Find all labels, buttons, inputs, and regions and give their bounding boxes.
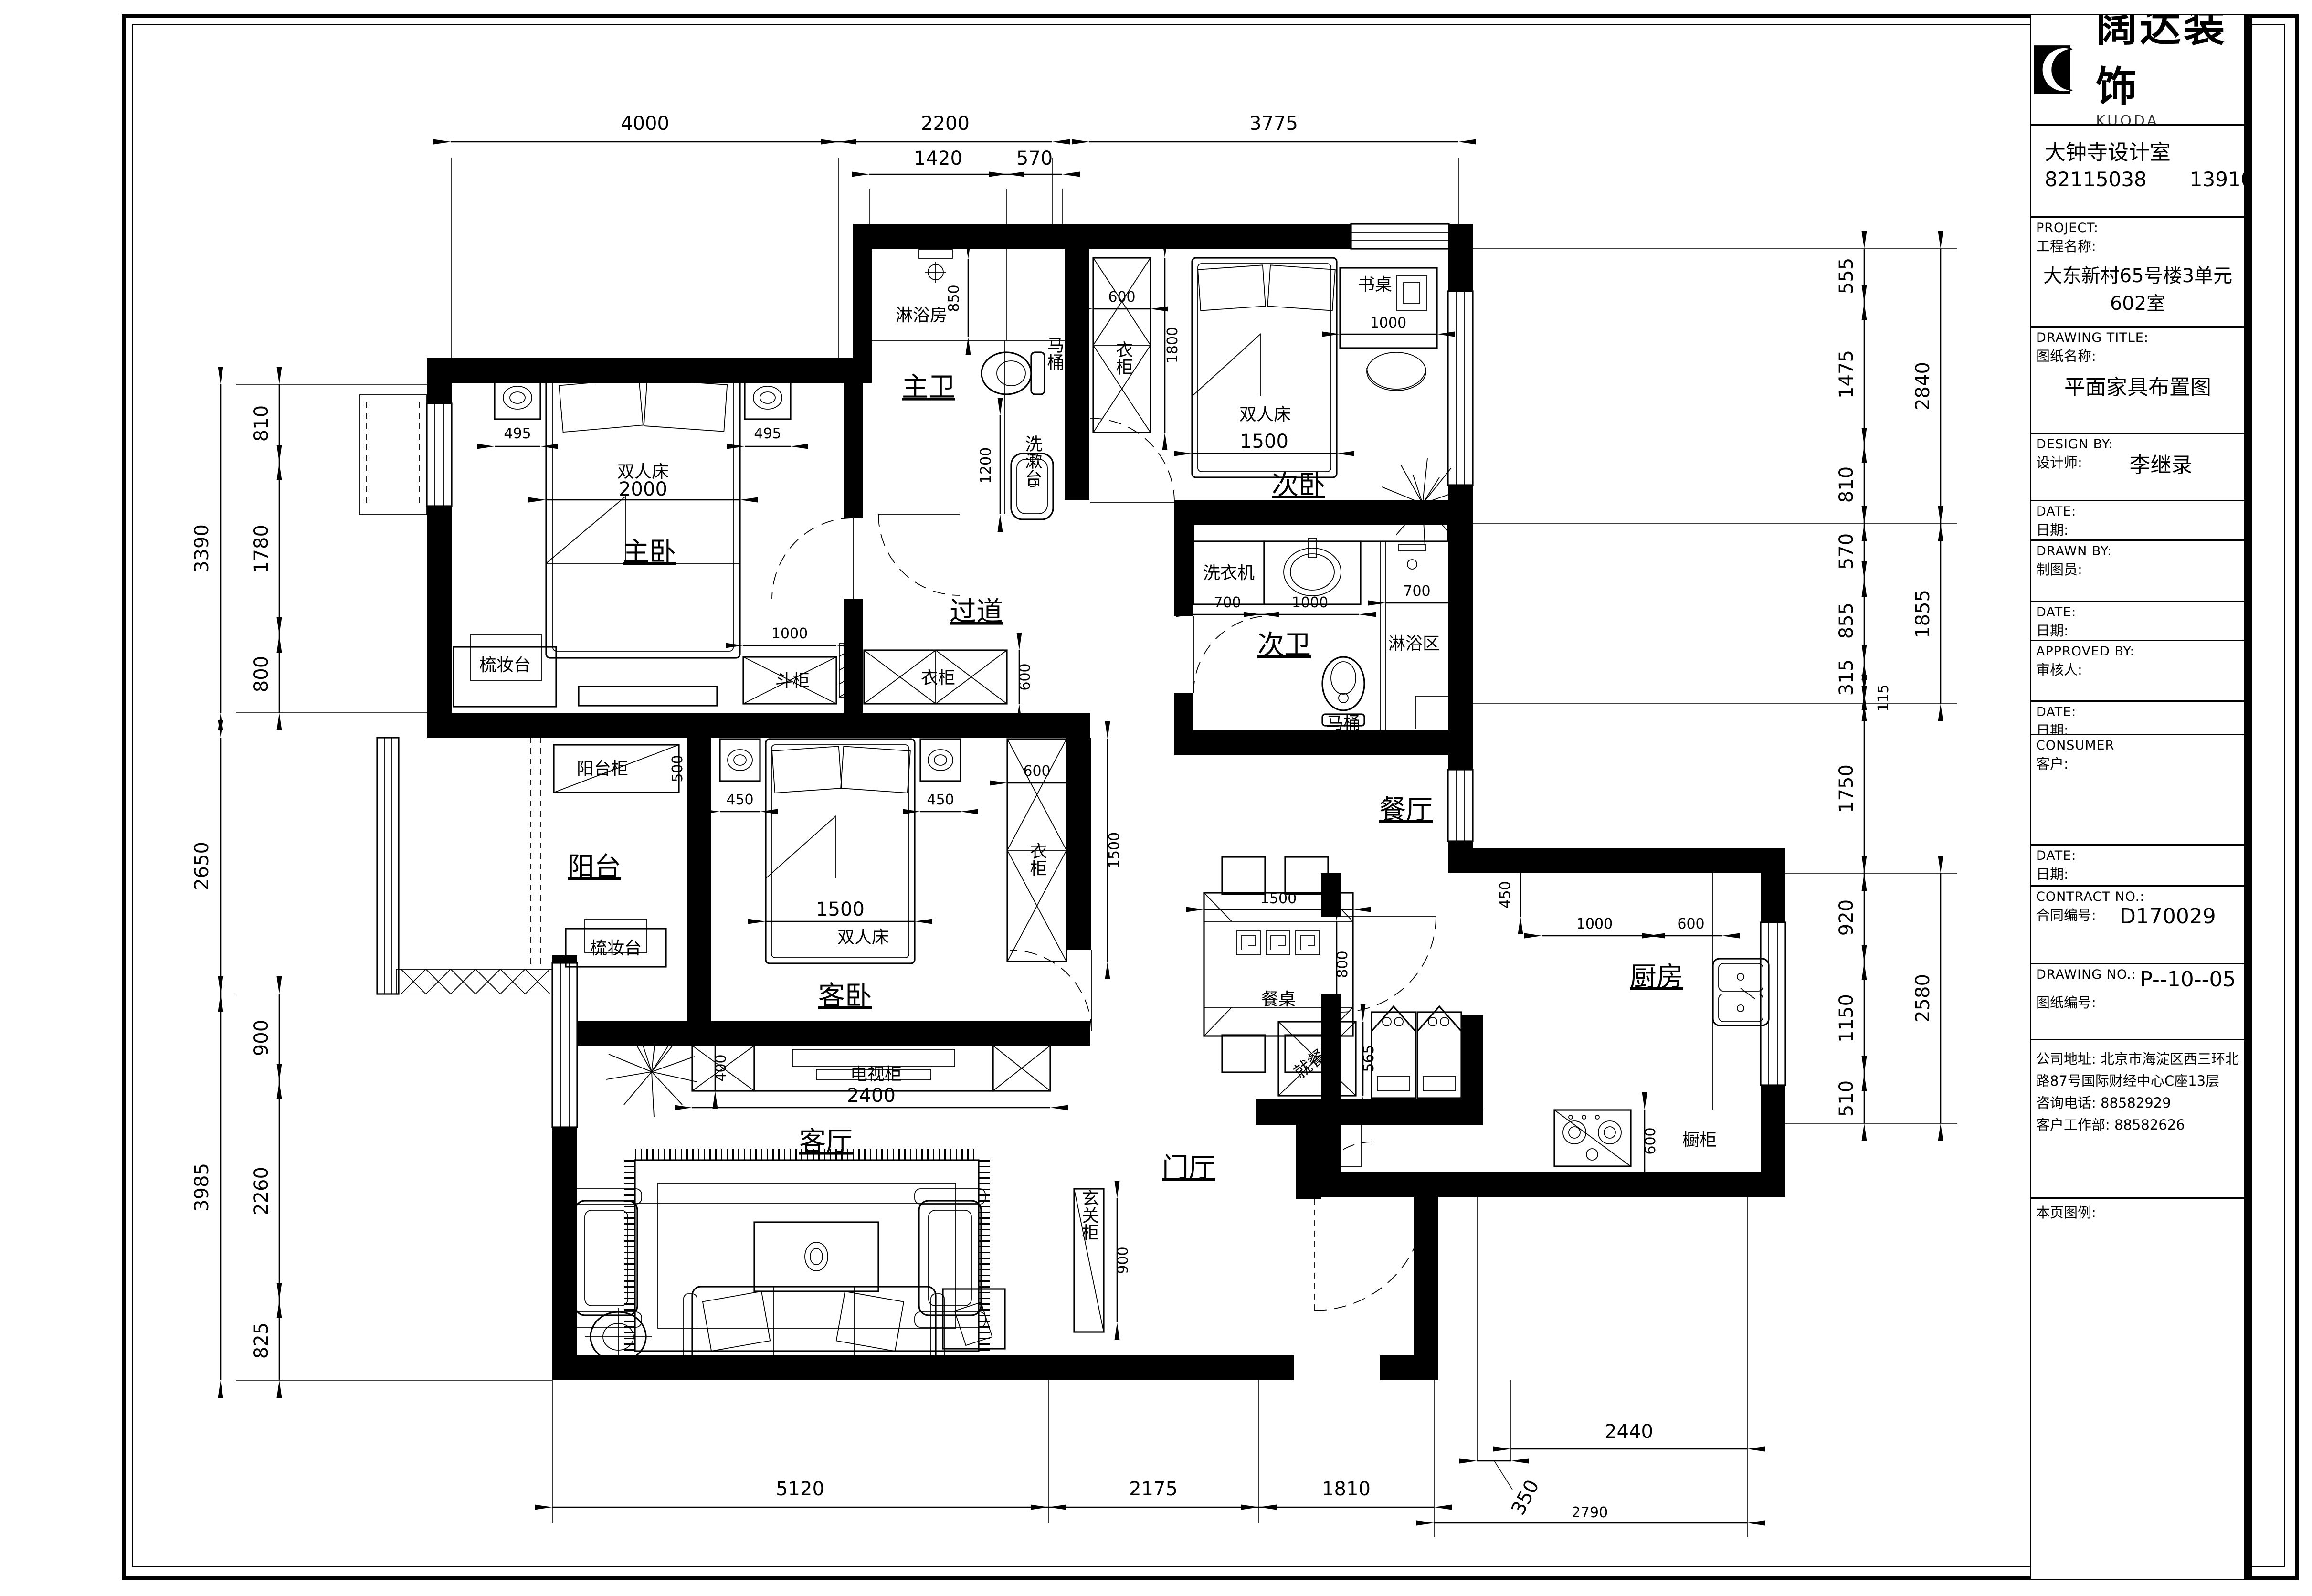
guest-room <box>720 739 1066 963</box>
coffee-table <box>754 1222 878 1291</box>
label-bedroom2: 次卧 <box>1272 470 1325 501</box>
contract-label-cn: 合同编号: <box>2036 904 2096 924</box>
svg-text:3390: 3390 <box>191 524 213 573</box>
svg-text:1750: 1750 <box>1836 764 1858 813</box>
drawing-title-label-en: DRAWING TITLE: <box>2036 330 2239 345</box>
svg-text:2175: 2175 <box>1129 1478 1178 1500</box>
date-label-cn: 日期: <box>2036 620 2239 640</box>
svg-text:570: 570 <box>1836 533 1858 570</box>
label-shower-area: 淋浴区 <box>1388 634 1440 654</box>
date-label-en: DATE: <box>2036 848 2239 863</box>
table-pattern <box>1236 931 1320 955</box>
company-address-row: 公司地址: 北京市海淀区西三环北 路87号国际财经中心C座13层 咨询电话: 8… <box>2031 1039 2244 1197</box>
label-toilet-master: 马桶 <box>1045 336 1065 370</box>
svg-text:1150: 1150 <box>1836 994 1858 1043</box>
window-master-left <box>360 395 452 515</box>
svg-text:115: 115 <box>1875 684 1892 711</box>
studio-tel-1: 82115038 <box>2045 168 2147 191</box>
design-by-row: DESIGN BY: 设计师: 李继录 <box>2031 433 2244 500</box>
svg-text:1780: 1780 <box>251 525 273 573</box>
project-label-cn: 工程名称: <box>2036 235 2239 255</box>
svg-text:4000: 4000 <box>621 113 669 135</box>
label-master-bath: 主卫 <box>902 372 955 403</box>
label-basin: 洗漱台 <box>1023 435 1042 486</box>
approved-by-label-cn: 审核人: <box>2036 659 2239 679</box>
consumer-row: CONSUMER 客户: <box>2031 734 2244 844</box>
svg-text:1000: 1000 <box>1292 594 1328 611</box>
date-label-en: DATE: <box>2036 504 2239 519</box>
label-wardrobe-bedroom2: 衣柜 <box>1113 341 1133 375</box>
svg-text:3775: 3775 <box>1249 113 1298 135</box>
label-living: 客厅 <box>799 1126 853 1157</box>
company-phone: 咨询电话: 88582929 <box>2036 1092 2239 1114</box>
svg-text:800: 800 <box>251 656 273 692</box>
label-dining-table: 餐桌 <box>1261 990 1296 1009</box>
studio-row: 大钟寺设计室 82115038 13910138513 <box>2031 124 2244 216</box>
svg-text:555: 555 <box>1836 258 1858 294</box>
door-kitchen <box>1341 917 1436 1012</box>
svg-text:900: 900 <box>251 1020 273 1056</box>
svg-text:700: 700 <box>1214 594 1241 611</box>
svg-text:2840: 2840 <box>1912 362 1934 411</box>
svg-text:1000: 1000 <box>1576 916 1613 932</box>
label-foyer: 门厅 <box>1162 1152 1215 1184</box>
svg-text:2000: 2000 <box>619 478 667 500</box>
bath2 <box>1193 524 1448 730</box>
svg-text:810: 810 <box>1836 466 1858 503</box>
project-value: 大东新村65号楼3单元602室 <box>2036 260 2239 316</box>
shower-head2-icon <box>1399 544 1425 569</box>
svg-text:1500: 1500 <box>1260 890 1297 907</box>
svg-text:315: 315 <box>1836 659 1858 696</box>
svg-text:2650: 2650 <box>191 842 213 890</box>
svg-text:510: 510 <box>1836 1080 1858 1117</box>
svg-text:350: 350 <box>1507 1476 1543 1519</box>
svg-text:1000: 1000 <box>771 625 808 642</box>
svg-text:2260: 2260 <box>251 1167 273 1215</box>
date-label-en: DATE: <box>2036 705 2239 719</box>
svg-text:3985: 3985 <box>191 1163 213 1212</box>
label-balcony-cabinet: 阳台柜 <box>577 759 628 779</box>
svg-text:2790: 2790 <box>1572 1504 1608 1521</box>
label-bath2: 次卫 <box>1257 630 1311 661</box>
svg-text:1810: 1810 <box>1322 1478 1371 1500</box>
svg-text:450: 450 <box>726 792 753 808</box>
label-wardrobe-corridor: 衣柜 <box>921 668 955 688</box>
project-row: PROJECT: 工程名称: 大东新村65号楼3单元602室 <box>2031 216 2244 326</box>
label-bed-bedroom2: 双人床 <box>1239 405 1291 424</box>
label-entry-cabinet: 玄关柜 <box>1079 1189 1099 1241</box>
date-label-en: DATE: <box>2036 605 2239 620</box>
label-master: 主卧 <box>623 537 676 568</box>
label-cupboard: 橱柜 <box>1682 1131 1717 1150</box>
door-master <box>772 518 853 599</box>
studio-name: 大钟寺设计室 <box>2045 135 2239 166</box>
label-bed-guest: 双人床 <box>837 928 889 947</box>
svg-text:810: 810 <box>251 405 273 442</box>
master-bedroom <box>454 371 1007 707</box>
svg-text:855: 855 <box>1836 602 1858 639</box>
svg-text:600: 600 <box>1108 289 1135 306</box>
svg-text:1420: 1420 <box>914 148 962 169</box>
svg-text:600: 600 <box>1023 763 1050 780</box>
drawn-by-label-en: DRAWN BY: <box>2036 544 2239 559</box>
svg-text:2200: 2200 <box>921 113 970 135</box>
company-name-en: KUODA DECORRTION <box>2096 113 2241 124</box>
svg-text:825: 825 <box>251 1322 273 1359</box>
armchair-right <box>915 1189 985 1327</box>
company-address-2: 路87号国际财经中心C座13层 <box>2036 1070 2239 1092</box>
studio-tel-2: 13910138513 <box>2190 168 2244 191</box>
date-row-2: DATE: 日期: <box>2031 601 2244 640</box>
plate-cabinet <box>1372 1006 1461 1098</box>
svg-text:600: 600 <box>1017 663 1034 690</box>
door-master-bath <box>878 514 960 595</box>
label-toilet-bath2: 马桶 <box>1326 714 1361 733</box>
company-logo-row: 阔达装饰 KUODA DECORRTION <box>2031 15 2244 124</box>
drawing-no-label-cn: 图纸编号: <box>2036 992 2239 1012</box>
consumer-label-en: CONSUMER <box>2036 738 2239 753</box>
project-label-en: PROJECT: <box>2036 221 2239 235</box>
window-balcony-left <box>377 738 399 994</box>
svg-text:2400: 2400 <box>847 1085 896 1107</box>
date-label-cn: 日期: <box>2036 863 2239 883</box>
svg-text:1000: 1000 <box>1370 315 1406 331</box>
svg-text:920: 920 <box>1836 899 1858 936</box>
svg-text:600: 600 <box>1677 916 1704 932</box>
approved-by-label-en: APPROVED BY: <box>2036 644 2239 659</box>
label-washer: 洗衣机 <box>1203 563 1255 583</box>
title-block-bar <box>2244 15 2252 1579</box>
svg-text:5120: 5120 <box>776 1478 824 1500</box>
svg-text:1475: 1475 <box>1836 350 1858 399</box>
legend-label: 本页图例: <box>2036 1202 2239 1222</box>
room-labels: 主卧 主卫 淋浴房 过道 次卧 次卫 淋浴区 阳台 客卧 客厅 餐厅 厨房 门厅 <box>568 306 1683 1184</box>
drawn-by-label-cn: 制图员: <box>2036 559 2239 579</box>
label-dresser-guest: 梳妆台 <box>590 939 642 958</box>
title-block: 阔达装饰 KUODA DECORRTION 大钟寺设计室 82115038 13… <box>2030 15 2244 1579</box>
label-wardrobe-guest: 衣柜 <box>1027 842 1047 877</box>
shower-head-icon <box>919 250 952 283</box>
company-address-1: 公司地址: 北京市海淀区西三环北 <box>2036 1048 2239 1070</box>
date-label-cn: 日期: <box>2036 519 2239 539</box>
contract-label-en: CONTRACT NO.: <box>2036 889 2239 904</box>
door-bedroom2 <box>1090 418 1174 502</box>
design-by-label-cn: 设计师: <box>2036 452 2082 472</box>
stove <box>1554 1110 1631 1166</box>
svg-text:1500: 1500 <box>1106 832 1123 868</box>
drawing-title-value: 平面家具布置图 <box>2036 370 2239 401</box>
label-dresser-master: 梳妆台 <box>479 655 531 675</box>
svg-text:1200: 1200 <box>978 447 994 484</box>
approved-by-row: APPROVED BY: 审核人: <box>2031 640 2244 700</box>
label-guest: 客卧 <box>818 981 872 1012</box>
label-corridor: 过道 <box>950 596 1003 627</box>
living-room <box>571 1155 1005 1365</box>
window-bedroom2-top <box>1351 224 1449 249</box>
floor-plan: 主卧 主卫 淋浴房 过道 次卧 次卫 淋浴区 阳台 客卧 客厅 餐厅 厨房 门厅… <box>0 0 2312 1596</box>
furniture-labels: 双人床 梳妆台 斗柜 衣柜 马桶 洗漱台 衣柜 双人床 书桌 洗衣机 马桶 阳台… <box>479 275 1717 1241</box>
drawing-title-row: DRAWING TITLE: 图纸名称: 平面家具布置图 <box>2031 326 2244 433</box>
window-kitchen-right <box>1761 922 1785 1085</box>
svg-text:500: 500 <box>669 755 686 782</box>
svg-text:850: 850 <box>946 285 962 312</box>
svg-text:1800: 1800 <box>1164 327 1181 363</box>
label-balcony: 阳台 <box>568 852 621 883</box>
svg-text:495: 495 <box>504 425 531 442</box>
svg-text:570: 570 <box>1016 148 1053 169</box>
toilet-master <box>982 352 1045 394</box>
label-tv-cabinet: 电视柜 <box>850 1065 902 1084</box>
drawing-no-label-en: DRAWING NO.: <box>2036 967 2136 982</box>
company-service-phone: 客户工作部: 88582626 <box>2036 1114 2239 1136</box>
label-shower-room: 淋浴房 <box>896 306 947 325</box>
company-name-cn: 阔达装饰 <box>2096 15 2241 113</box>
svg-text:565: 565 <box>1361 1045 1377 1072</box>
svg-text:2580: 2580 <box>1912 974 1934 1023</box>
svg-text:700: 700 <box>1403 583 1430 600</box>
svg-text:900: 900 <box>1115 1247 1131 1274</box>
label-chest: 斗柜 <box>775 671 810 691</box>
date-row-4: DATE: 日期: <box>2031 844 2244 885</box>
drawing-no-row: DRAWING NO.: P--10--05 图纸编号: <box>2031 963 2244 1039</box>
date-label-cn: 日期: <box>2036 719 2239 734</box>
corner-table <box>943 1289 1005 1349</box>
label-desk: 书桌 <box>1358 275 1392 295</box>
label-dining: 餐厅 <box>1379 794 1433 825</box>
drawing-title-label-cn: 图纸名称: <box>2036 345 2239 365</box>
window-dining-right <box>1448 770 1473 841</box>
balcony-old-window-line <box>531 738 540 969</box>
svg-text:800: 800 <box>1334 951 1351 978</box>
svg-text:450: 450 <box>1497 881 1514 908</box>
svg-text:1855: 1855 <box>1912 590 1934 638</box>
svg-text:450: 450 <box>927 792 954 808</box>
svg-text:600: 600 <box>1642 1127 1659 1154</box>
balcony-sill-hatch <box>396 969 552 994</box>
drawn-by-row: DRAWN BY: 制图员: <box>2031 539 2244 601</box>
window-living-left <box>552 963 577 1127</box>
svg-text:1500: 1500 <box>1240 431 1288 453</box>
svg-text:495: 495 <box>754 425 781 442</box>
window-bedroom2-right <box>1448 291 1473 485</box>
date-row-1: DATE: 日期: <box>2031 500 2244 539</box>
svg-text:2440: 2440 <box>1605 1421 1653 1443</box>
date-row-3: DATE: 日期: <box>2031 700 2244 734</box>
contract-row: CONTRACT NO.: 合同编号: D170029 <box>2031 885 2244 963</box>
consumer-label-cn: 客户: <box>2036 753 2239 773</box>
svg-text:1500: 1500 <box>816 898 865 920</box>
company-logo-icon <box>2034 36 2089 103</box>
sofa <box>684 1287 944 1365</box>
legend-row: 本页图例: <box>2031 1197 2244 1579</box>
svg-text:400: 400 <box>713 1054 729 1081</box>
label-kitchen: 厨房 <box>1630 962 1683 993</box>
